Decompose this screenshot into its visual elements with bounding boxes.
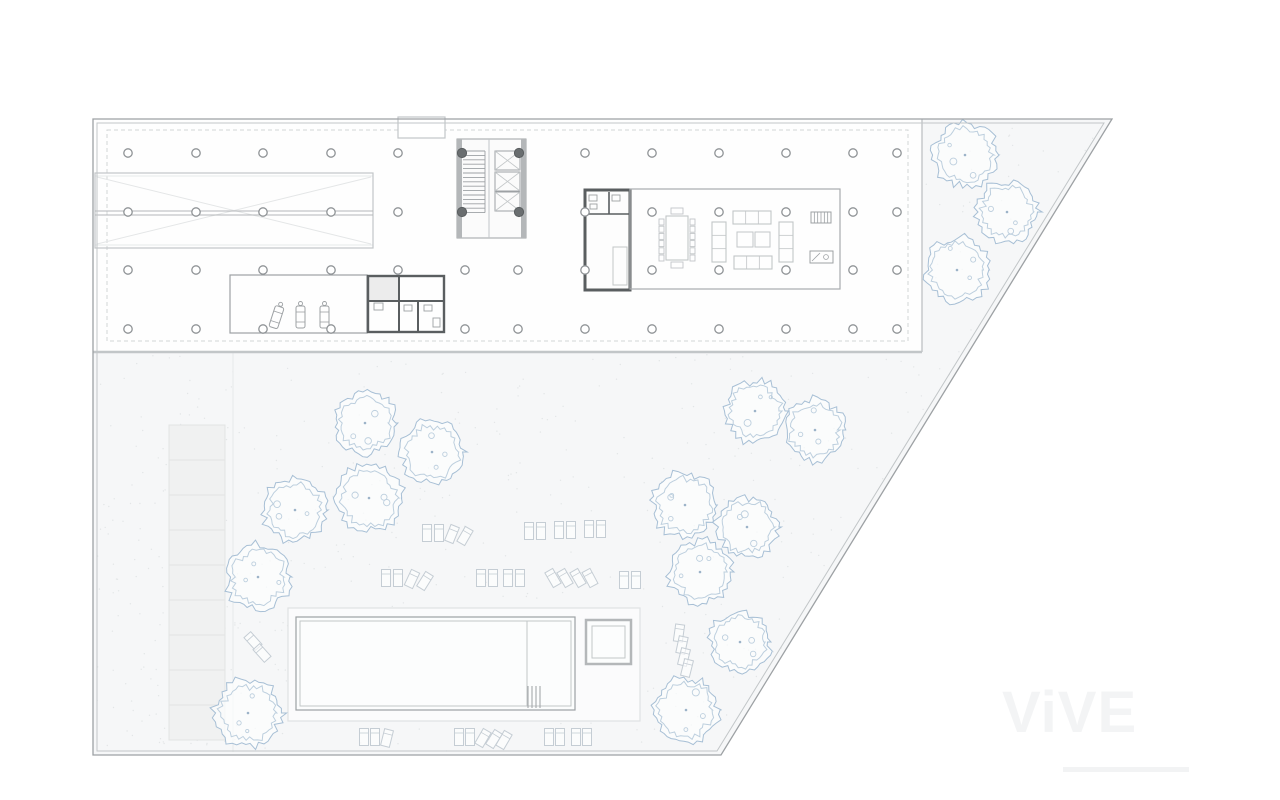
ground-texture-dot <box>516 472 517 473</box>
ground-texture-dot <box>969 202 970 203</box>
sun-lounger <box>455 729 464 746</box>
ground-texture-dot <box>770 460 771 461</box>
ground-texture-dot <box>259 621 260 622</box>
ground-texture-dot <box>704 633 705 634</box>
column-circle <box>648 208 656 216</box>
column-circle <box>782 208 790 216</box>
column-circle <box>124 325 132 333</box>
column-circle <box>192 149 200 157</box>
ground-texture-dot <box>125 683 126 684</box>
ground-texture-dot <box>112 520 113 521</box>
column-circle <box>394 149 402 157</box>
sun-lounger <box>394 570 403 587</box>
ground-texture-dot <box>136 446 137 447</box>
sun-lounger <box>504 570 513 587</box>
ground-texture-dot <box>156 713 157 714</box>
ground-texture-dot <box>141 669 142 670</box>
ground-texture-dot <box>494 422 495 423</box>
ground-texture-dot <box>708 458 709 459</box>
ground-texture-dot <box>156 669 157 670</box>
tree-trunk-dot <box>684 504 687 507</box>
column-circle <box>648 266 656 274</box>
ground-texture-dot <box>449 495 450 496</box>
ground-texture-dot <box>131 484 132 485</box>
ground-texture-dot <box>659 360 660 361</box>
ground-texture-dot <box>141 720 142 721</box>
ground-texture-dot <box>204 418 205 419</box>
ground-texture-dot <box>1058 171 1059 172</box>
ground-texture-dot <box>442 374 443 375</box>
sun-lounger-frame <box>583 729 592 746</box>
ground-texture-dot <box>499 433 500 434</box>
ground-texture-dot <box>363 386 364 387</box>
ground-texture-dot <box>291 560 292 561</box>
ground-texture-dot <box>540 431 541 432</box>
ground-texture-dot <box>388 566 389 567</box>
ground-texture-dot <box>344 544 345 545</box>
ground-texture-dot <box>118 590 119 591</box>
ground-texture-dot <box>103 504 104 505</box>
ground-texture-dot <box>517 387 518 388</box>
sun-lounger <box>525 523 534 540</box>
sun-lounger-frame <box>394 570 403 587</box>
ground-texture-dot <box>713 469 714 470</box>
ground-texture-dot <box>774 499 775 500</box>
column-circle <box>327 149 335 157</box>
column-circle <box>782 149 790 157</box>
ground-texture-dot <box>254 448 255 449</box>
column-circle <box>849 266 857 274</box>
tree-trunk-dot <box>685 709 688 712</box>
column-circle <box>394 266 402 274</box>
ground-texture-dot <box>939 204 940 205</box>
ground-texture-dot <box>725 418 726 419</box>
tree-trunk-dot <box>257 576 260 579</box>
column-circle <box>893 208 901 216</box>
core-column <box>514 148 523 157</box>
sun-lounger <box>489 570 498 587</box>
ground-texture-dot <box>124 378 125 379</box>
core-column <box>457 148 466 157</box>
ground-texture-dot <box>723 499 724 500</box>
ground-texture-dot <box>126 730 127 731</box>
column-circle <box>893 266 901 274</box>
ground-texture-dot <box>226 439 227 440</box>
sun-lounger <box>632 572 641 589</box>
ground-texture-dot <box>665 642 666 643</box>
ground-texture-dot <box>756 676 757 677</box>
ground-texture-dot <box>496 431 497 432</box>
ground-texture-dot <box>189 414 190 415</box>
ground-texture-dot <box>143 666 144 667</box>
sun-lounger-frame <box>423 525 432 542</box>
ground-texture-dot <box>338 551 339 552</box>
ground-texture-dot <box>244 427 245 428</box>
ground-texture-dot <box>282 733 283 734</box>
ground-texture-dot <box>227 427 228 428</box>
floor-plan-canvas: ViVE <box>0 0 1280 800</box>
ground-texture-dot <box>684 612 685 613</box>
sun-lounger <box>466 729 475 746</box>
ground-texture-dot <box>706 354 707 355</box>
ground-texture-dot <box>508 475 509 476</box>
ground-texture-dot <box>231 386 232 387</box>
ground-texture-dot <box>590 723 591 724</box>
ground-texture-dot <box>107 745 108 746</box>
core-column <box>514 207 523 216</box>
ground-texture-dot <box>922 409 923 410</box>
ground-texture-dot <box>157 685 158 686</box>
ground-texture-dot <box>434 515 435 516</box>
paving-strip <box>169 425 225 740</box>
ground-texture-dot <box>542 418 543 419</box>
ground-texture-dot <box>913 366 914 367</box>
core-column <box>457 207 466 216</box>
sun-lounger-frame <box>597 521 606 538</box>
ground-texture-dot <box>550 494 551 495</box>
ground-texture-dot <box>818 555 819 556</box>
ground-texture-dot <box>496 408 497 409</box>
ground-texture-dot <box>662 606 663 607</box>
ground-texture-dot <box>813 534 814 535</box>
ground-texture-dot <box>197 406 198 407</box>
ground-texture-dot <box>570 551 571 552</box>
ground-texture-dot <box>705 614 706 615</box>
ground-texture-dot <box>391 361 392 362</box>
ground-texture-dot <box>1092 138 1093 139</box>
ground-texture-dot <box>519 385 520 386</box>
column-circle <box>715 208 723 216</box>
spa-outer <box>586 620 631 664</box>
ground-texture-dot <box>158 556 159 557</box>
ground-texture-dot <box>742 356 743 357</box>
watermark: ViVE <box>1002 684 1222 742</box>
ground-texture-dot <box>162 567 163 568</box>
ground-texture-dot <box>113 592 114 593</box>
ground-texture-dot <box>519 462 520 463</box>
ground-texture-dot <box>876 467 877 468</box>
ground-texture-dot <box>328 442 329 443</box>
ground-texture-dot <box>130 603 131 604</box>
ground-texture-dot <box>458 412 459 413</box>
sun-lounger <box>572 729 581 746</box>
ground-texture-dot <box>155 640 156 641</box>
column-circle <box>192 208 200 216</box>
ground-texture-dot <box>144 653 145 654</box>
column-circle <box>715 325 723 333</box>
watermark-text: ViVE <box>1002 680 1137 745</box>
tree-trunk-dot <box>431 451 434 454</box>
ground-texture-dot <box>1018 164 1019 165</box>
sun-lounger-frame <box>477 570 486 587</box>
ground-texture-dot <box>275 630 276 631</box>
ground-texture-dot <box>419 728 420 729</box>
column-circle <box>124 208 132 216</box>
ground-texture-dot <box>158 695 159 696</box>
ground-texture-dot <box>239 432 240 433</box>
ground-texture-dot <box>907 411 908 412</box>
ground-texture-dot <box>753 480 754 481</box>
ground-texture-dot <box>970 329 971 330</box>
column-circle <box>192 266 200 274</box>
wc-b-walls <box>585 190 630 290</box>
sun-lounger-frame <box>516 570 525 587</box>
ground-texture-dot <box>687 442 688 443</box>
ground-texture-dot <box>420 499 421 500</box>
sun-lounger <box>556 729 565 746</box>
ground-texture-dot <box>231 669 232 670</box>
ground-texture-dot <box>226 520 227 521</box>
tree-trunk-dot <box>1006 211 1009 214</box>
ground-texture-dot <box>136 576 137 577</box>
sun-lounger-frame <box>545 729 554 746</box>
ground-texture-dot <box>282 622 283 623</box>
ground-texture-dot <box>322 466 323 467</box>
ground-texture-dot <box>131 700 132 701</box>
column-circle <box>514 325 522 333</box>
sun-lounger-frame <box>620 572 629 589</box>
ground-texture-dot <box>117 579 118 580</box>
ground-texture-dot <box>264 747 265 748</box>
ground-texture-dot <box>455 418 456 419</box>
ground-texture-dot <box>926 184 927 185</box>
sun-lounger-frame <box>360 729 369 746</box>
ground-texture-dot <box>341 558 342 559</box>
ground-texture-dot <box>791 533 792 534</box>
ground-texture-dot <box>958 351 959 352</box>
ground-texture-dot <box>163 741 164 742</box>
ground-texture-dot <box>288 542 289 543</box>
ground-texture-dot <box>882 478 883 479</box>
ground-texture-dot <box>234 624 235 625</box>
pool-outer-edge <box>296 617 575 710</box>
ground-texture-dot <box>694 359 695 360</box>
ground-texture-dot <box>100 384 101 385</box>
ground-texture-dot <box>703 652 704 653</box>
ground-texture-dot <box>644 482 645 483</box>
ground-texture-dot <box>517 395 518 396</box>
sun-lounger-frame <box>537 523 546 540</box>
ground-texture-dot <box>624 476 625 477</box>
ground-texture-dot <box>592 359 593 360</box>
column-circle <box>192 325 200 333</box>
column-circle <box>461 325 469 333</box>
column-circle <box>259 208 267 216</box>
ground-texture-dot <box>160 738 161 739</box>
ground-texture-dot <box>459 423 460 424</box>
ground-texture-dot <box>304 421 305 422</box>
ground-texture-dot <box>198 398 199 399</box>
sun-lounger <box>371 729 380 746</box>
ground-texture-dot <box>227 606 228 607</box>
ground-texture-dot <box>555 416 556 417</box>
sun-lounger-frame <box>632 572 641 589</box>
ground-texture-dot <box>442 497 443 498</box>
ground-texture-dot <box>900 361 901 362</box>
ground-texture-dot <box>781 541 782 542</box>
ground-texture-dot <box>105 527 106 528</box>
ground-texture-dot <box>562 592 563 593</box>
ground-texture-dot <box>142 430 143 431</box>
ground-texture-dot <box>477 444 478 445</box>
sun-lounger <box>516 570 525 587</box>
ground-texture-dot <box>189 380 190 381</box>
ground-texture-dot <box>647 691 648 692</box>
ground-texture-dot <box>483 542 484 543</box>
ground-texture-dot <box>751 370 752 371</box>
ground-texture-dot <box>623 437 624 438</box>
tree-trunk-dot <box>739 641 742 644</box>
ground-texture-dot <box>108 533 109 534</box>
ground-texture-dot <box>691 383 692 384</box>
ground-texture-dot <box>187 393 188 394</box>
column-circle <box>461 266 469 274</box>
ground-texture-dot <box>812 373 813 374</box>
ground-texture-dot <box>1012 145 1013 146</box>
ground-texture-dot <box>1085 150 1086 151</box>
ground-texture-dot <box>436 584 437 585</box>
ground-texture-dot <box>377 366 378 367</box>
ground-texture-dot <box>351 581 352 582</box>
sun-lounger-frame <box>555 522 564 539</box>
ground-texture-dot <box>886 359 887 360</box>
ground-texture-dot <box>164 728 165 729</box>
ground-texture-dot <box>636 729 637 730</box>
sun-lounger <box>583 729 592 746</box>
ground-texture-dot <box>643 588 644 589</box>
ground-texture-dot <box>505 555 506 556</box>
sun-lounger <box>585 521 594 538</box>
ground-texture-dot <box>154 503 155 504</box>
ground-texture-dot <box>921 395 922 396</box>
column-circle <box>124 149 132 157</box>
ground-texture-dot <box>654 729 655 730</box>
ground-texture-dot <box>313 568 314 569</box>
ground-texture-dot <box>616 379 617 380</box>
ground-texture-dot <box>130 503 131 504</box>
ground-texture-dot <box>149 715 150 716</box>
ground-texture-dot <box>510 473 511 474</box>
ground-texture-dot <box>225 389 226 390</box>
sun-lounger-frame <box>572 729 581 746</box>
ground-texture-dot <box>420 488 421 489</box>
ground-texture-dot <box>113 670 114 671</box>
ground-texture-dot <box>141 416 142 417</box>
tree-trunk-dot <box>964 154 967 157</box>
ground-texture-dot <box>441 392 442 393</box>
ground-texture-dot <box>397 523 398 524</box>
ground-texture-dot <box>675 357 676 358</box>
ground-texture-dot <box>475 427 476 428</box>
sun-lounger <box>537 523 546 540</box>
ground-texture-dot <box>799 465 800 466</box>
tree-trunk-dot <box>814 429 817 432</box>
ground-texture-dot <box>918 374 919 375</box>
column-circle <box>581 325 589 333</box>
sun-lounger <box>545 729 554 746</box>
ground-texture-dot <box>206 744 207 745</box>
ground-texture-dot <box>857 468 858 469</box>
entrance-notch <box>398 117 445 138</box>
ground-texture-dot <box>536 597 537 598</box>
ground-texture-dot <box>617 453 618 454</box>
ground-texture-dot <box>543 393 544 394</box>
ground-texture-dot <box>516 511 517 512</box>
ground-texture-dot <box>285 669 286 670</box>
ground-texture-dot <box>353 462 354 463</box>
ground-texture-dot <box>523 379 524 380</box>
ground-texture-dot <box>391 532 392 533</box>
ground-texture-dot <box>139 613 140 614</box>
sun-lounger <box>423 525 432 542</box>
ground-texture-dot <box>845 437 846 438</box>
ground-texture-dot <box>652 458 653 459</box>
ground-texture-dot <box>813 518 814 519</box>
ground-texture-dot <box>258 492 259 493</box>
ground-texture-dot <box>150 678 151 679</box>
ground-texture-dot <box>397 743 398 744</box>
ground-texture-dot <box>721 604 722 605</box>
ground-texture-dot <box>610 576 611 577</box>
ground-texture-dot <box>599 385 600 386</box>
tree-trunk-dot <box>746 526 749 529</box>
column-circle <box>394 208 402 216</box>
ground-texture-dot <box>134 559 135 560</box>
ground-texture-dot <box>237 627 238 628</box>
ground-texture-dot <box>114 498 115 499</box>
ground-texture-dot <box>122 521 123 522</box>
sun-lounger-frame <box>585 521 594 538</box>
ground-texture-dot <box>705 444 706 445</box>
ground-texture-dot <box>502 596 503 597</box>
ground-texture-dot <box>516 488 517 489</box>
sun-lounger <box>382 570 391 587</box>
tree-trunk-dot <box>956 269 959 272</box>
ground-texture-dot <box>445 549 446 550</box>
ground-texture-dot <box>113 564 114 565</box>
ground-texture-dot <box>779 618 780 619</box>
ground-texture-dot <box>963 205 964 206</box>
ground-texture-dot <box>369 564 370 565</box>
sun-lounger <box>360 729 369 746</box>
ground-texture-dot <box>158 457 159 458</box>
ground-texture-dot <box>152 355 153 356</box>
ground-texture-dot <box>276 468 277 469</box>
ground-texture-dot <box>791 375 792 376</box>
sun-lounger-frame <box>455 729 464 746</box>
ground-texture-dot <box>773 651 774 652</box>
sun-lounger <box>477 570 486 587</box>
ground-texture-dot <box>591 510 592 511</box>
column-circle <box>648 325 656 333</box>
ground-texture-dot <box>280 449 281 450</box>
ground-texture-dot <box>281 630 282 631</box>
sun-lounger-frame <box>556 729 565 746</box>
ground-texture-dot <box>112 631 113 632</box>
ground-texture-dot <box>868 377 869 378</box>
ground-texture-dot <box>108 506 109 507</box>
ground-texture-dot <box>133 710 134 711</box>
ground-texture-dot <box>234 622 235 623</box>
sun-lounger-frame <box>435 525 444 542</box>
ground-texture-dot <box>180 413 181 414</box>
ground-texture-dot <box>851 449 852 450</box>
ground-texture-dot <box>190 743 191 744</box>
ground-texture-dot <box>403 602 404 603</box>
ground-texture-dot <box>726 714 727 715</box>
ground-texture-dot <box>163 490 164 491</box>
ground-texture-dot <box>138 540 139 541</box>
